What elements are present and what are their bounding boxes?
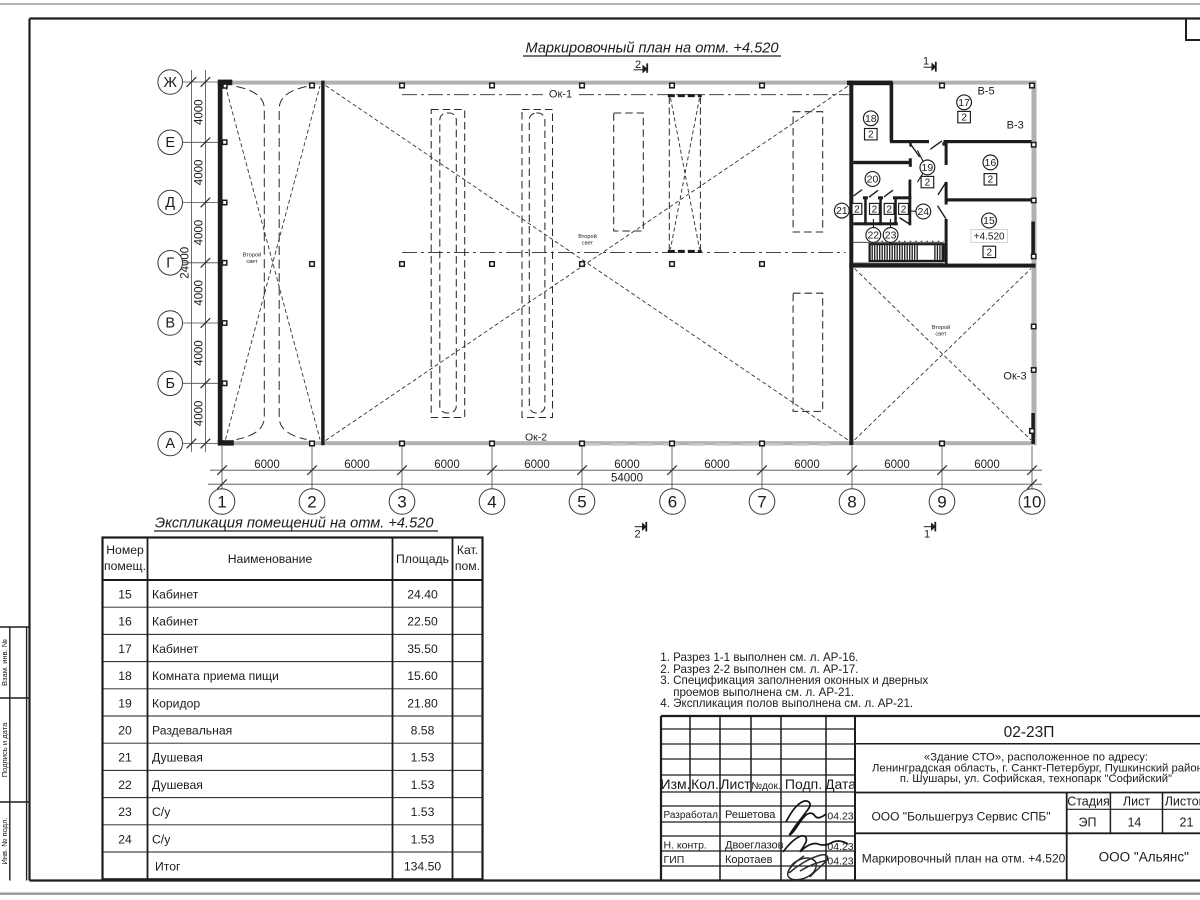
svg-text:свет: свет [582,241,594,247]
svg-text:10: 10 [1023,493,1042,512]
svg-text:4000: 4000 [194,220,206,246]
svg-text:15: 15 [118,588,132,602]
svg-text:4000: 4000 [194,340,206,366]
svg-text:Изм.: Изм. [661,776,691,792]
svg-text:2: 2 [872,204,878,215]
svg-text:пом.: пом. [455,559,480,573]
svg-text:1: 1 [923,56,929,68]
svg-text:В-5: В-5 [977,86,994,98]
svg-text:2: 2 [868,130,874,141]
svg-text:Кабинет: Кабинет [152,588,199,602]
svg-text:Ж: Ж [164,75,178,91]
svg-text:Раздевальная: Раздевальная [152,724,232,738]
svg-text:Второй: Второй [243,252,262,259]
svg-text:4: 4 [487,493,496,512]
svg-text:6000: 6000 [524,459,550,471]
svg-text:17: 17 [118,642,132,656]
svg-text:Н. контр.: Н. контр. [664,840,707,852]
svg-text:6000: 6000 [794,459,820,471]
svg-text:22: 22 [118,778,132,792]
svg-text:20: 20 [867,174,879,186]
svg-text:ЭП: ЭП [1079,816,1097,830]
svg-text:20: 20 [118,724,132,738]
svg-text:4000: 4000 [194,280,206,306]
svg-text:С/у: С/у [152,805,171,819]
svg-text:Кол.: Кол. [691,776,719,792]
svg-text:Второй: Второй [578,233,597,240]
svg-text:Лист: Лист [1123,794,1150,808]
svg-text:Кат.: Кат. [457,543,478,557]
svg-text:2: 2 [886,204,892,215]
svg-text:8.58: 8.58 [411,724,435,738]
svg-text:18: 18 [865,113,877,125]
svg-text:02-23П: 02-23П [1004,724,1055,741]
svg-text:16: 16 [118,615,132,629]
svg-text:24: 24 [917,206,929,218]
svg-text:Разработал: Разработал [664,809,719,821]
svg-text:Наименование: Наименование [228,552,313,566]
svg-text:3: 3 [397,493,406,512]
svg-text:2: 2 [901,204,907,215]
svg-text:21.80: 21.80 [407,696,438,710]
svg-text:Д: Д [165,195,175,211]
svg-text:Ок-1: Ок-1 [549,88,572,100]
svg-text:6000: 6000 [344,459,370,471]
svg-text:2: 2 [961,113,967,124]
svg-text:Экспликация помещений на отм.: Экспликация помещений на отм. +4.520 [155,516,433,532]
svg-text:54000: 54000 [611,473,643,485]
svg-text:04.23: 04.23 [827,811,853,823]
svg-text:6: 6 [668,493,677,512]
svg-text:1: 1 [217,493,226,512]
svg-text:2: 2 [307,493,316,512]
svg-text:помещ.: помещ. [104,559,146,573]
svg-text:6000: 6000 [974,459,1000,471]
svg-text:7: 7 [757,493,766,512]
svg-text:4000: 4000 [194,99,206,125]
svg-text:Ок-2: Ок-2 [525,431,547,443]
svg-text:+4.520: +4.520 [974,232,1005,243]
svg-text:21: 21 [836,205,848,217]
svg-text:2: 2 [635,59,641,71]
svg-text:Лист: Лист [720,776,751,792]
svg-text:Инв. № подл.: Инв. № подл. [0,817,9,864]
svg-text:16: 16 [985,157,997,169]
svg-text:Двоеглазов: Двоеглазов [725,840,784,852]
svg-text:8: 8 [847,493,856,512]
svg-text:Номер: Номер [106,543,144,557]
svg-text:Листов: Листов [1165,794,1200,808]
svg-text:19: 19 [922,162,934,174]
svg-text:2: 2 [634,529,640,541]
svg-text:24.40: 24.40 [407,588,438,602]
svg-text:23: 23 [118,805,132,819]
svg-text:24: 24 [118,832,132,846]
svg-text:свет: свет [246,259,258,265]
svg-text:В-3: В-3 [1007,119,1024,131]
svg-text:23: 23 [885,230,897,242]
svg-text:Маркировочный план на отм. +4.: Маркировочный план на отм. +4.520 [862,852,1066,866]
svg-text:Б: Б [165,376,175,392]
svg-text:Подпись и дата: Подпись и дата [0,722,9,777]
svg-text:18: 18 [118,669,132,683]
svg-text:6000: 6000 [434,459,460,471]
svg-text:Коридор: Коридор [152,696,200,710]
svg-text:свет: свет [935,332,947,338]
svg-text:ООО "Альянс": ООО "Альянс" [1099,850,1189,865]
svg-text:В: В [165,316,175,332]
svg-text:35.50: 35.50 [407,642,438,656]
svg-text:Маркировочный план на отм. +4.: Маркировочный план на отм. +4.520 [526,41,779,57]
svg-text:2: 2 [987,247,993,258]
svg-text:22.50: 22.50 [407,615,438,629]
svg-text:Душевая: Душевая [152,778,203,792]
svg-text:134.50: 134.50 [404,860,441,874]
svg-text:Г: Г [166,256,174,272]
svg-text:4000: 4000 [194,401,206,427]
svg-text:Кабинет: Кабинет [152,642,199,656]
svg-text:ООО "Большегруз Сервис СПБ": ООО "Большегруз Сервис СПБ" [871,810,1050,824]
svg-text:2: 2 [988,175,994,186]
svg-text:19: 19 [118,696,132,710]
svg-text:2: 2 [854,204,860,215]
svg-text:Стадия: Стадия [1067,794,1110,808]
svg-text:1.53: 1.53 [411,751,435,765]
svg-text:14: 14 [1127,816,1141,830]
svg-text:15.60: 15.60 [407,669,438,683]
svg-text:А: А [165,436,175,452]
svg-text:6000: 6000 [254,459,280,471]
svg-text:2: 2 [925,178,931,189]
svg-text:21: 21 [1180,816,1194,830]
svg-text:4. Экспликация полов выполнена: 4. Экспликация полов выполнена см. л. АР… [660,697,913,710]
svg-text:04.23: 04.23 [827,856,853,868]
svg-text:6000: 6000 [704,459,730,471]
svg-text:9: 9 [937,493,946,512]
svg-text:Е: Е [165,135,175,151]
svg-text:Решетова: Решетова [725,809,776,821]
svg-text:Ок-3: Ок-3 [1003,371,1026,383]
svg-text:С/у: С/у [152,832,171,846]
svg-text:17: 17 [958,97,970,109]
svg-text:1: 1 [924,529,930,541]
svg-text:6000: 6000 [884,459,910,471]
svg-text:Взам. инв. №: Взам. инв. № [0,639,9,686]
svg-text:Итог: Итог [155,860,181,874]
svg-text:Второй: Второй [932,324,951,331]
svg-text:Кабинет: Кабинет [152,615,199,629]
svg-text:5: 5 [577,493,586,512]
svg-text:Коротаев: Коротаев [725,854,773,866]
svg-text:Площадь: Площадь [396,552,449,566]
svg-text:п. Шушары, ул. Софийская, техн: п. Шушары, ул. Софийская, технопарк "Соф… [900,773,1172,785]
svg-text:4000: 4000 [194,160,206,186]
svg-text:21: 21 [118,751,132,765]
svg-text:Комната приема пищи: Комната приема пищи [152,669,279,683]
svg-text:6000: 6000 [614,459,640,471]
svg-text:22: 22 [867,230,879,242]
svg-text:ГИП: ГИП [664,854,685,866]
svg-text:15: 15 [983,215,995,227]
svg-text:1.53: 1.53 [411,778,435,792]
svg-text:№док.: №док. [751,781,780,792]
svg-text:1.53: 1.53 [411,805,435,819]
svg-text:1.53: 1.53 [411,832,435,846]
svg-text:Подп.: Подп. [785,776,822,792]
svg-text:Дата: Дата [825,776,856,792]
svg-text:Душевая: Душевая [152,751,203,765]
